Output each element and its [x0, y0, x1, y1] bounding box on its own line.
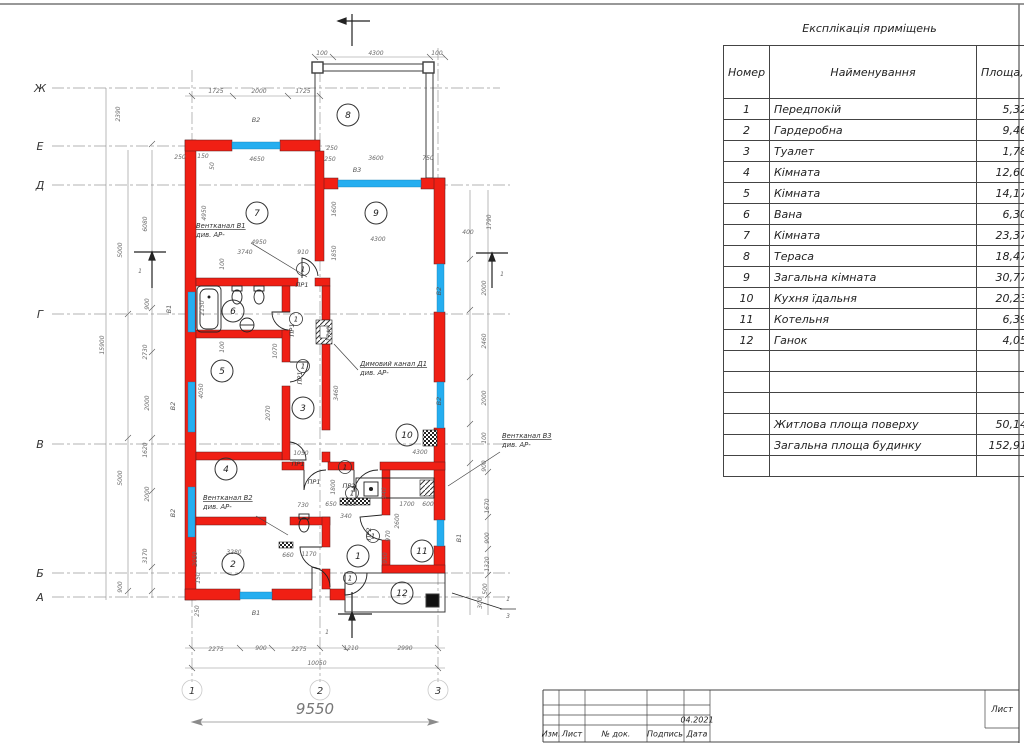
dim-label: 1725: [295, 88, 310, 95]
room-area-cell: 18,47: [977, 246, 1024, 267]
dim-label: 2050: [192, 551, 199, 566]
dim-label: 910: [297, 249, 309, 256]
roomnum-label: 2: [230, 560, 236, 570]
dim-label: 1: [138, 268, 142, 275]
table-row: 9Загальна кімната30,77: [724, 267, 1024, 288]
roomnum-label: 10: [401, 431, 413, 441]
dim-label: 2000: [481, 390, 488, 405]
room-name-cell: Котельня: [770, 309, 977, 330]
winlab-label: В2: [435, 397, 443, 406]
ann-label: див. АР-: [202, 503, 232, 511]
dim-label: 1725: [208, 88, 223, 95]
doornum-label: 1: [301, 266, 305, 274]
dim-label: 3: [506, 613, 510, 620]
room-number-cell: 3: [724, 141, 770, 162]
doornum-label: 1: [301, 363, 305, 371]
dim-label: 250: [194, 605, 201, 617]
table-row-empty: [724, 351, 1024, 372]
dim-label: 1670: [484, 498, 491, 513]
room-area-cell: 50,14: [977, 414, 1024, 435]
axis-number-bubbles: 123: [182, 680, 448, 700]
table-row: 8Тераса18,47: [724, 246, 1024, 267]
room-name-cell: Загальна кімната: [770, 267, 977, 288]
room-number-cell: 5: [724, 183, 770, 204]
dim-label: 15900: [99, 335, 106, 354]
room-name-cell: [770, 372, 977, 393]
winlab-label: В2: [169, 402, 177, 411]
room-name-cell: Тераса: [770, 246, 977, 267]
winlab-label: В2: [169, 509, 177, 518]
room-number-cell: [724, 414, 770, 435]
axisletter-label: Е: [37, 140, 44, 153]
winlab-label: В1: [165, 305, 173, 314]
title-block-label: Лист: [562, 730, 582, 739]
title-block-label: Дата: [687, 730, 708, 739]
dim-label: 250: [326, 145, 338, 152]
title-block-sheet-label: Лист: [991, 705, 1013, 715]
dim-label: 250: [324, 156, 336, 163]
dim-label: 100: [219, 341, 226, 353]
dim-label: 500: [482, 583, 489, 595]
axisnum-label: 1: [189, 686, 195, 697]
dim-label: 5000: [117, 470, 124, 485]
title-block-label: Подпись: [647, 730, 683, 739]
overall-dimension: [192, 719, 438, 725]
room-number-cell: 7: [724, 225, 770, 246]
annotation-leader: [334, 344, 358, 370]
room-number-cell: 2: [724, 120, 770, 141]
room-area-cell: 4,05: [977, 330, 1024, 351]
room-name-cell: Кімната: [770, 225, 977, 246]
ann-label: Вентканал В2: [203, 494, 253, 502]
explication-title: Експлікація приміщень: [723, 22, 1016, 35]
table-row: 10Кухня їдальня20,23: [724, 288, 1024, 309]
dim-label: 400: [462, 229, 474, 236]
annotation-leader: [256, 516, 288, 535]
dim-label: 250: [174, 154, 186, 161]
doorlab-label: ПР2: [365, 528, 373, 541]
dim-label: 2000: [481, 280, 488, 295]
winlab-label: В3: [353, 166, 362, 174]
title-block-date: 04.2021: [680, 716, 713, 725]
room-name-cell: Туалет: [770, 141, 977, 162]
room-name-cell: [770, 456, 977, 477]
dim-label: 4650: [249, 156, 264, 163]
table-row-summary: Житлова площа поверху50,14: [724, 414, 1024, 435]
dim-label: 5000: [117, 242, 124, 257]
winlab-label: В1: [455, 534, 463, 543]
dim-label: 10050: [307, 660, 326, 667]
dim-label: 100: [316, 50, 328, 57]
room-area-cell: 5,32: [977, 99, 1024, 120]
overall-dimension-label: 9550: [296, 700, 334, 718]
ann-label: див. АР-: [195, 231, 225, 239]
room-area-cell: 30,77: [977, 267, 1024, 288]
annotation-labels: Вентканал В1див. АР-Вентканал В2див. АР-…: [195, 222, 552, 535]
room-name-cell: Кухня їдальня: [770, 288, 977, 309]
room-area-cell: 6,30: [977, 204, 1024, 225]
ann-label: див. АР-: [501, 441, 531, 449]
dim-label: 750: [422, 155, 434, 162]
room-number-cell: 6: [724, 204, 770, 225]
room-number-cell: [724, 456, 770, 477]
room-area-cell: [977, 393, 1024, 414]
dim-label: 730: [297, 502, 309, 509]
dim-label: 2460: [481, 333, 488, 348]
roomnum-label: 11: [416, 547, 427, 557]
dim-label: 1320: [484, 556, 491, 571]
roomnum-label: 1: [355, 552, 361, 562]
winlab-label: В2: [252, 116, 261, 124]
axisletter-label: Ж: [33, 82, 47, 95]
dim-label: 2000: [144, 486, 151, 501]
dim-label: 2000: [144, 395, 151, 410]
dim-label: 900: [484, 532, 491, 544]
room-name-cell: Житлова площа поверху: [770, 414, 977, 435]
axisletter-label: Г: [37, 308, 44, 321]
dim-label: 2730: [142, 344, 149, 359]
dim-label: 100: [431, 50, 443, 57]
dim-label: 150: [195, 572, 202, 584]
dim-label: 900: [144, 298, 151, 310]
room-name-cell: Кімната: [770, 183, 977, 204]
dim-label: 940: [381, 487, 388, 499]
dim-label: 1740: [326, 326, 333, 341]
dim-label: 900: [117, 581, 124, 593]
table-row-summary: Загальна площа будинку152,91: [724, 435, 1024, 456]
room-area-cell: 9,46: [977, 120, 1024, 141]
dim-label: 1: [500, 271, 504, 278]
doornum-label: 1: [348, 575, 352, 583]
dim-label: 4300: [412, 449, 427, 456]
dim-label: 660: [282, 552, 294, 559]
table-row: 7Кімната23,37: [724, 225, 1024, 246]
table-row-empty: [724, 372, 1024, 393]
room-name-cell: [770, 393, 977, 414]
table-row: 5Кімната14,17: [724, 183, 1024, 204]
table-row: 12Ганок4,05: [724, 330, 1024, 351]
room-area-cell: [977, 456, 1024, 477]
dim-label: 910: [345, 501, 357, 508]
room-area-cell: 20,23: [977, 288, 1024, 309]
roomnum-label: 9: [373, 209, 379, 219]
axis-letter-labels: ЖЕДГВБА: [33, 82, 47, 604]
title-block-label: № док.: [602, 730, 631, 739]
room-number-cell: 11: [724, 309, 770, 330]
toilet-icon: [232, 286, 242, 304]
dim-label: 50: [209, 162, 216, 170]
doorlab-label: ПР1: [296, 281, 309, 289]
roomnum-label: 7: [254, 209, 260, 219]
table-row: 11Котельня6,39: [724, 309, 1024, 330]
room-number-cell: [724, 372, 770, 393]
dim-label: 2275: [208, 646, 223, 653]
dim-label: 100: [481, 432, 488, 444]
dim-label: 3460: [333, 385, 340, 400]
dim-label: 1: [325, 629, 329, 636]
dim-label: 1790: [486, 214, 493, 229]
dim-label: 950: [382, 552, 389, 564]
room-number-cell: [724, 393, 770, 414]
ann-label: Вентканал В1: [196, 222, 246, 230]
ann-label: Димовий канал Д1: [359, 360, 427, 368]
dim-label: 1070: [272, 343, 279, 358]
big-label: 9550: [296, 700, 334, 718]
dim-label: 3600: [368, 155, 383, 162]
room-name-cell: Передпокій: [770, 99, 977, 120]
dim-label: 1600: [331, 201, 338, 216]
doornum-label: 1: [350, 490, 354, 498]
axisnum-label: 2: [317, 686, 323, 697]
dim-label: 1050: [293, 450, 308, 457]
room-area-cell: 1,78: [977, 141, 1024, 162]
room-number-cell: 9: [724, 267, 770, 288]
table-row: 2Гардеробна9,46: [724, 120, 1024, 141]
room-name-cell: [770, 351, 977, 372]
ann-label: див. АР-: [359, 369, 389, 377]
dim-label: 1800: [330, 479, 337, 494]
dim-label: 300: [477, 597, 484, 609]
dim-label: 2070: [265, 405, 272, 420]
room-number-cell: 12: [724, 330, 770, 351]
winlab-label: В2: [435, 287, 443, 296]
dim-label: 150: [197, 153, 209, 160]
dim-label: 1170: [301, 551, 316, 558]
table-row: 4Кімната12,60: [724, 162, 1024, 183]
dim-label: 970: [385, 530, 392, 542]
table-row-empty: [724, 456, 1024, 477]
ann-label: Вентканал В3: [502, 432, 552, 440]
dim-label: 3740: [237, 249, 252, 256]
toilet-icon: [254, 286, 264, 304]
dim-label: 2600: [394, 513, 401, 528]
roomnum-label: 4: [223, 465, 229, 475]
roomnum-label: 3: [300, 404, 306, 414]
table-row: 3Туалет1,78: [724, 141, 1024, 162]
room-area-cell: [977, 351, 1024, 372]
room-name-cell: Ганок: [770, 330, 977, 351]
dim-label: 4300: [368, 50, 383, 57]
roomnum-label: 8: [345, 111, 351, 121]
dim-label: 340: [340, 513, 352, 520]
axisletter-label: В: [36, 438, 44, 451]
room-area-cell: 23,37: [977, 225, 1024, 246]
room-number-cell: 10: [724, 288, 770, 309]
dim-label: 2000: [251, 88, 266, 95]
dim-label: 2390: [115, 106, 122, 121]
dim-label: 2990: [397, 645, 412, 652]
table-row-empty: [724, 393, 1024, 414]
room-number-cell: [724, 435, 770, 456]
roomnum-label: 6: [230, 307, 236, 317]
room-area-cell: [977, 372, 1024, 393]
column-header-name: Найменування: [770, 46, 977, 99]
column-header-area: Площа, м2: [977, 46, 1024, 99]
axisnum-label: 3: [435, 686, 441, 697]
winlab-label: В1: [252, 609, 261, 617]
dim-label: 600: [422, 501, 434, 508]
dim-label: 4300: [370, 236, 385, 243]
room-number-cell: 8: [724, 246, 770, 267]
doorlab-label: ПР1: [296, 372, 304, 385]
dim-label: 900: [255, 645, 267, 652]
doorlab-label: ПР1: [288, 324, 296, 337]
dim-label: 4950: [201, 205, 208, 220]
drawing-sheet: { "explication": { "title": "Експлікація…: [0, 0, 1024, 743]
axisletter-label: Д: [35, 179, 45, 192]
roomnum-label: 12: [396, 589, 408, 599]
dim-label: 1620: [142, 442, 149, 457]
room-area-cell: 6,39: [977, 309, 1024, 330]
doorlab-label: ПР1: [292, 460, 305, 468]
dim-label: 2150: [199, 300, 206, 315]
doornum-label: 1: [294, 316, 298, 324]
room-area-cell: 12,60: [977, 162, 1024, 183]
room-name-cell: Кімната: [770, 162, 977, 183]
room-area-cell: 14,17: [977, 183, 1024, 204]
room-number-cell: 4: [724, 162, 770, 183]
dim-label: 1210: [343, 645, 358, 652]
doorlab-label: ПР1: [308, 478, 321, 486]
table-row: 6Вана6,30: [724, 204, 1024, 225]
dim-label: 650: [325, 501, 337, 508]
dim-label: 4050: [198, 383, 205, 398]
room-area-cell: 152,91: [977, 435, 1024, 456]
dim-label: 1: [506, 596, 510, 603]
doornum-label: 1: [343, 464, 347, 472]
porch-outline: [345, 573, 445, 612]
room-name-cell: Гардеробна: [770, 120, 977, 141]
dim-label: 3280: [226, 549, 241, 556]
dim-label: 100: [219, 258, 226, 270]
title-block-label: Изм.: [542, 730, 561, 739]
roomnum-label: 5: [219, 367, 225, 377]
room-number-cell: [724, 351, 770, 372]
table-row: 1Передпокій5,32: [724, 99, 1024, 120]
axisletter-label: А: [35, 591, 44, 604]
dim-label: 1700: [399, 501, 414, 508]
dim-label: 2275: [291, 646, 306, 653]
explication-table: Номер прим. Найменування Площа, м2 1Пере…: [723, 45, 1024, 477]
axisletter-label: Б: [36, 567, 44, 580]
dim-label: 1850: [331, 245, 338, 260]
room-name-cell: Вана: [770, 204, 977, 225]
annotation-leader: [448, 452, 500, 486]
column-header-number: Номер прим.: [724, 46, 770, 99]
dim-label: 3170: [142, 548, 149, 563]
dim-label: 6080: [142, 216, 149, 231]
room-name-cell: Загальна площа будинку: [770, 435, 977, 456]
room-number-cell: 1: [724, 99, 770, 120]
doorlab-label: ПР2: [343, 482, 356, 490]
